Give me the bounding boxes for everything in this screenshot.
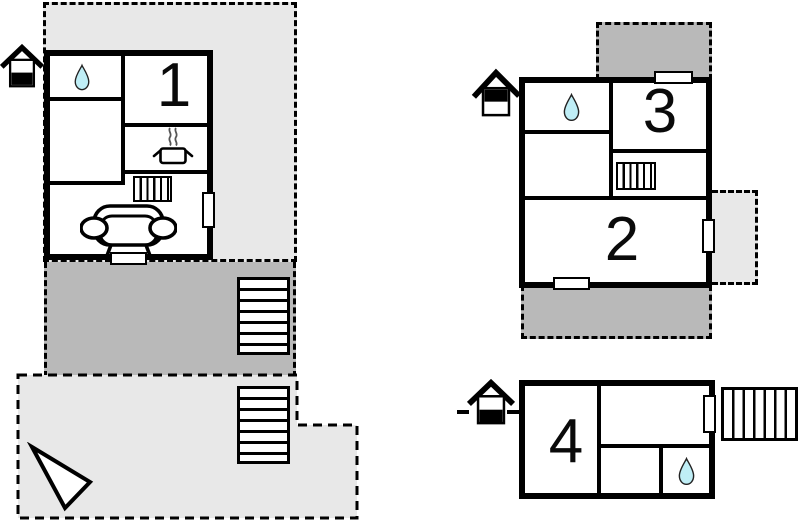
stairs-icon-garden <box>237 386 290 464</box>
door-building4-right <box>703 395 716 433</box>
terrace-bottom-building2 <box>521 285 712 339</box>
water-drop-icon <box>562 93 581 122</box>
floorplan-canvas: 1 3 2 <box>0 0 800 524</box>
wall <box>525 130 609 134</box>
wall <box>121 56 125 185</box>
radiator-icon <box>133 176 172 202</box>
stove-icon <box>152 126 194 168</box>
entrance-icon-building2 <box>471 68 521 118</box>
wall <box>609 83 613 200</box>
wall <box>125 170 207 174</box>
wall <box>601 444 709 448</box>
wall <box>50 181 125 185</box>
door-building2-bottom <box>553 277 590 290</box>
room-1-label: 1 <box>140 55 208 117</box>
wall <box>613 149 706 153</box>
wall <box>525 196 706 200</box>
door-building1-bottom <box>110 252 147 265</box>
entrance-icon-building1 <box>0 42 44 90</box>
wall <box>659 448 663 493</box>
room-3-label: 3 <box>626 81 694 143</box>
room-4-label: 4 <box>532 411 600 473</box>
radiator-icon <box>616 162 656 190</box>
entrance-icon-building4 <box>466 379 516 426</box>
north-arrow-icon <box>27 442 95 512</box>
water-drop-icon <box>677 457 696 486</box>
wall <box>50 97 121 101</box>
water-drop-icon <box>73 63 91 92</box>
terrace-right-building2 <box>712 190 758 285</box>
door-building1-right <box>202 192 215 228</box>
stairs-icon-terrace <box>237 277 290 355</box>
stairs-icon-building4 <box>721 387 798 441</box>
door-building2-right <box>702 219 715 253</box>
door-building2-top <box>654 71 693 84</box>
sofa-icon <box>80 204 177 258</box>
room-2-label: 2 <box>588 209 656 271</box>
